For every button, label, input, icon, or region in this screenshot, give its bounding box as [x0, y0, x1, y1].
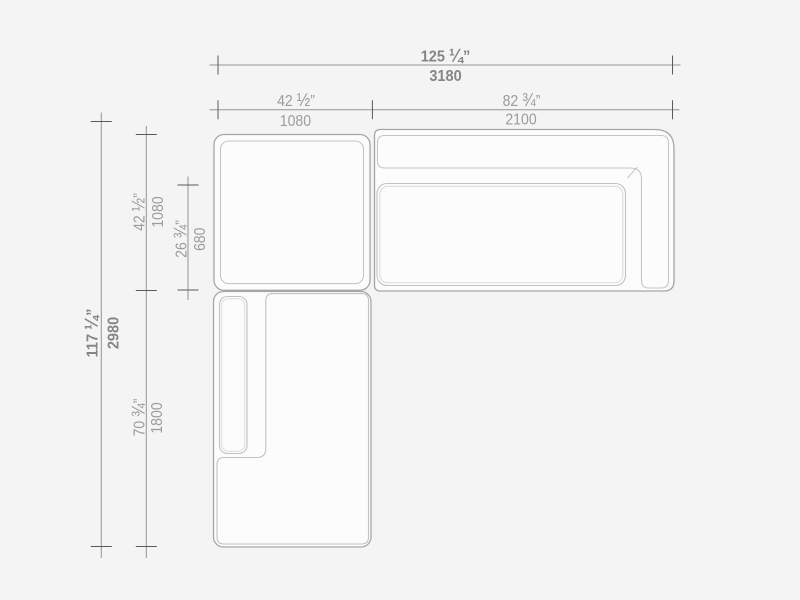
svg-text:82 ¾”: 82 ¾” [503, 89, 541, 110]
svg-text:680: 680 [191, 228, 209, 251]
svg-text:125 ¼”: 125 ¼” [421, 45, 471, 66]
svg-text:42 ½”: 42 ½” [277, 89, 315, 110]
svg-text:2100: 2100 [505, 111, 536, 129]
svg-text:42 ½”: 42 ½” [127, 193, 148, 231]
svg-text:1080: 1080 [149, 196, 167, 227]
svg-text:1800: 1800 [148, 402, 166, 433]
svg-text:2980: 2980 [105, 317, 123, 349]
svg-text:3180: 3180 [429, 67, 461, 85]
svg-text:26 ¾”: 26 ¾” [169, 220, 190, 258]
svg-text:70 ¾”: 70 ¾” [127, 399, 148, 437]
svg-text:1080: 1080 [280, 112, 311, 130]
svg-text:117 ¼”: 117 ¼” [81, 309, 102, 358]
